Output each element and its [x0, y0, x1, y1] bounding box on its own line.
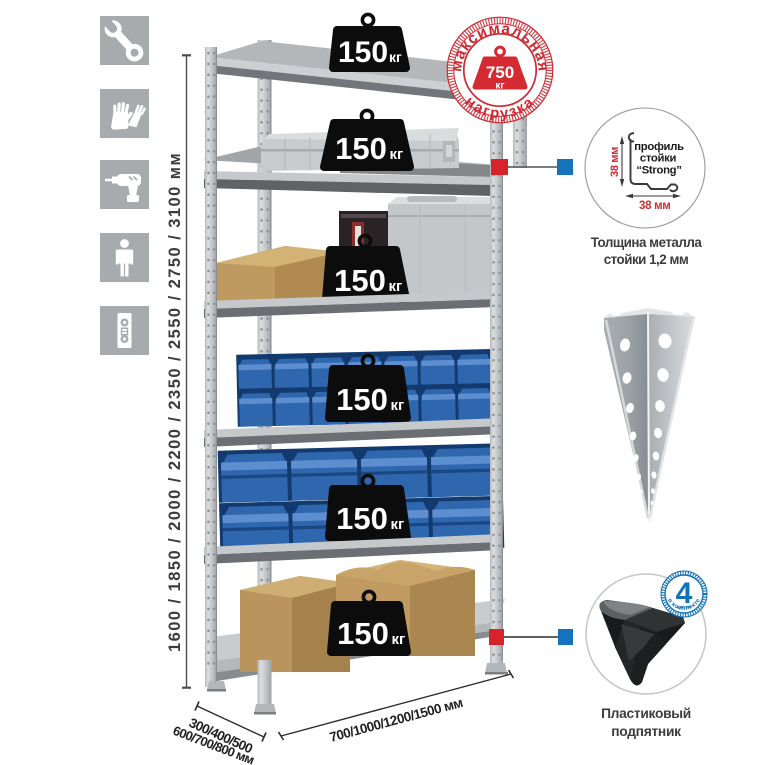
svg-text:подпятник: подпятник [611, 724, 681, 739]
svg-text:кг: кг [390, 146, 404, 163]
svg-text:750: 750 [486, 63, 514, 82]
svg-text:Пластиковый: Пластиковый [601, 706, 691, 721]
svg-text:кг: кг [391, 397, 405, 414]
svg-text:150: 150 [334, 263, 386, 298]
svg-text:150: 150 [337, 616, 389, 651]
svg-text:150: 150 [336, 382, 388, 417]
svg-text:стойки: стойки [640, 153, 677, 165]
svg-text:кг: кг [389, 278, 403, 295]
svg-text:38 мм: 38 мм [609, 147, 621, 177]
svg-text:1600 / 1850 / 2000 / 2200 / 23: 1600 / 1850 / 2000 / 2200 / 2350 / 2550 … [166, 152, 184, 652]
svg-text:150: 150 [336, 501, 388, 536]
svg-text:“Strong”: “Strong” [636, 165, 681, 177]
svg-text:Толщина металла: Толщина металла [591, 235, 703, 250]
svg-text:стойки 1,2 мм: стойки 1,2 мм [604, 252, 689, 267]
svg-text:кг: кг [389, 49, 402, 65]
svg-text:38 мм: 38 мм [639, 200, 671, 212]
svg-text:кг: кг [392, 631, 406, 648]
svg-text:700/1000/1200/1500 мм: 700/1000/1200/1500 мм [328, 695, 465, 745]
svg-text:профиль: профиль [634, 141, 684, 153]
svg-text:кг: кг [495, 81, 504, 92]
svg-text:150: 150 [338, 36, 388, 69]
svg-text:кг: кг [391, 516, 405, 533]
svg-text:150: 150 [335, 131, 387, 166]
